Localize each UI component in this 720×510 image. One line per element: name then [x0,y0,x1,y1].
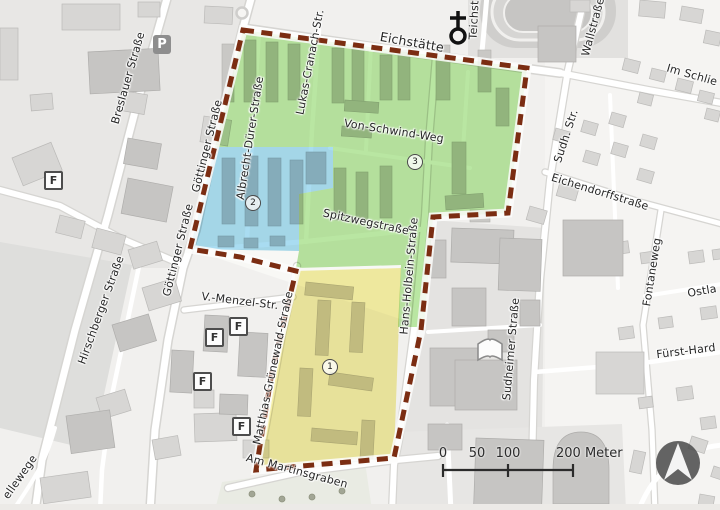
library-book-icon [478,339,502,360]
scale-label-100: 100 [496,446,521,461]
roundabout-icon [237,8,248,19]
f-box-icon: F [229,317,248,336]
f-box-icon: F [44,171,63,190]
street-label-teichstrasse: Teichst [466,0,481,40]
scale-label-0: 0 [439,446,447,461]
zone-marker-1: 1 [322,359,338,375]
map-canvas: Eichstätte Teichst Wallstraße Im Schlie … [0,0,720,510]
f-box-icon: F [193,372,212,391]
map-frame-edge [0,504,720,510]
zone-marker-3: 3 [407,154,423,170]
zone-marker-2: 2 [245,195,261,211]
f-box-icon: F [232,417,251,436]
scale-label-50: 50 [469,446,486,461]
scale-label-200-meter: 200 Meter [556,446,623,461]
basemap [0,0,720,510]
f-box-icon: F [205,328,224,347]
north-arrow-compass-icon [656,441,700,485]
parking-icon: P [153,35,171,54]
